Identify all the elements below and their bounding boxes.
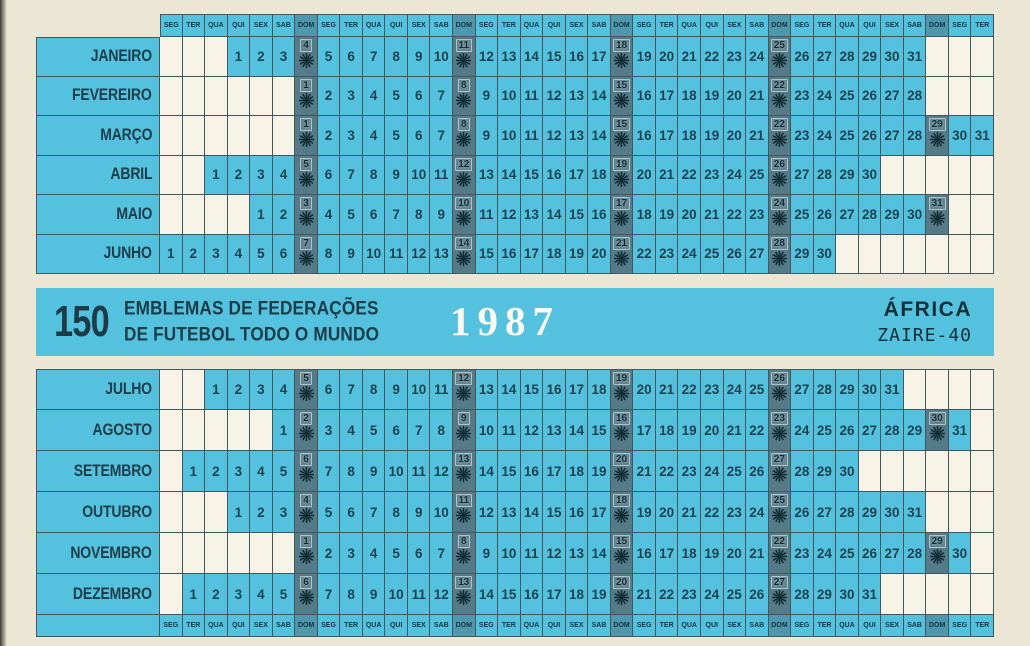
sunday-cell: 1 bbox=[295, 533, 318, 574]
day-cell: 5 bbox=[340, 195, 363, 235]
day-cell: 31 bbox=[881, 369, 904, 410]
day-cell: 14 bbox=[521, 492, 544, 533]
day-cell: 13 bbox=[566, 77, 589, 117]
day-cell: 24 bbox=[678, 235, 701, 275]
day-cell: 30 bbox=[836, 451, 859, 492]
sun-icon bbox=[772, 53, 787, 68]
sunday-number: 11 bbox=[456, 494, 473, 507]
sunday-number: 4 bbox=[300, 39, 312, 52]
day-cell: 13 bbox=[521, 195, 544, 235]
weekday-header-cell: SEX bbox=[881, 615, 904, 637]
weekday-header-cell: SEX bbox=[408, 14, 431, 37]
day-cell: 29 bbox=[881, 195, 904, 235]
day-cell: 5 bbox=[363, 410, 386, 451]
day-cell: 30 bbox=[814, 235, 837, 275]
day-cell: 2 bbox=[183, 235, 206, 275]
day-cell: 22 bbox=[656, 574, 679, 615]
blank-cell bbox=[926, 235, 949, 275]
day-cell: 28 bbox=[836, 492, 859, 533]
weekday-header-cell: TER bbox=[183, 615, 206, 637]
sunday-number: 23 bbox=[771, 412, 788, 425]
day-cell: 19 bbox=[566, 235, 589, 275]
day-cell: 17 bbox=[588, 492, 611, 533]
blank-cell bbox=[273, 77, 296, 117]
day-cell: 13 bbox=[566, 533, 589, 574]
sun-icon bbox=[614, 172, 629, 187]
blank-cell bbox=[949, 156, 972, 196]
day-cell: 21 bbox=[656, 369, 679, 410]
day-cell: 29 bbox=[836, 369, 859, 410]
day-cell: 24 bbox=[791, 410, 814, 451]
sun-icon bbox=[614, 467, 629, 482]
day-cell: 10 bbox=[430, 492, 453, 533]
blank-cell bbox=[205, 410, 228, 451]
month-label: SETEMBRO bbox=[36, 451, 160, 492]
day-cell: 20 bbox=[724, 77, 747, 117]
day-cell: 28 bbox=[904, 116, 927, 156]
sunday-number: 24 bbox=[771, 197, 788, 210]
sunday-cell: 3 bbox=[295, 195, 318, 235]
sunday-cell: 29 bbox=[926, 533, 949, 574]
day-cell: 10 bbox=[498, 116, 521, 156]
day-cell: 11 bbox=[521, 533, 544, 574]
weekday-header-cell: TER bbox=[183, 14, 206, 37]
weekday-header-cell: SEG bbox=[476, 615, 499, 637]
blank-cell bbox=[881, 235, 904, 275]
sunday-cell: 25 bbox=[769, 37, 792, 77]
sun-icon bbox=[299, 386, 314, 401]
banner-title: EMBLEMAS DE FEDERAÇÕES DE FUTEBOL TODO O… bbox=[124, 296, 379, 347]
weekday-header-cell: QUA bbox=[205, 615, 228, 637]
weekday-header-cell: SAB bbox=[746, 615, 769, 637]
day-cell: 3 bbox=[205, 235, 228, 275]
day-cell: 8 bbox=[385, 37, 408, 77]
weekday-header-cell: SEG bbox=[476, 14, 499, 37]
sunday-cell: 22 bbox=[769, 533, 792, 574]
day-cell: 30 bbox=[949, 116, 972, 156]
day-cell: 21 bbox=[678, 37, 701, 77]
day-cell: 9 bbox=[363, 451, 386, 492]
weekday-header-cell: QUI bbox=[859, 615, 882, 637]
day-cell: 18 bbox=[678, 77, 701, 117]
weekday-header-cell: QUA bbox=[678, 14, 701, 37]
day-cell: 10 bbox=[430, 37, 453, 77]
day-cell: 16 bbox=[521, 451, 544, 492]
day-cell: 25 bbox=[836, 116, 859, 156]
day-cell: 24 bbox=[746, 492, 769, 533]
day-cell: 2 bbox=[250, 492, 273, 533]
sunday-number: 12 bbox=[455, 372, 472, 385]
blank-cell bbox=[926, 574, 949, 615]
day-cell: 15 bbox=[521, 369, 544, 410]
blank-cell bbox=[205, 77, 228, 117]
sunday-cell: 13 bbox=[453, 574, 476, 615]
blank-cell bbox=[971, 195, 994, 235]
day-cell: 16 bbox=[633, 116, 656, 156]
sun-icon bbox=[772, 508, 787, 523]
weekday-header-cell: SAB bbox=[746, 14, 769, 37]
day-cell: 29 bbox=[791, 235, 814, 275]
sun-icon bbox=[456, 172, 471, 187]
sunday-cell: 23 bbox=[769, 410, 792, 451]
blank-cell bbox=[160, 156, 183, 196]
sunday-number: 1 bbox=[300, 118, 312, 131]
day-cell: 2 bbox=[250, 37, 273, 77]
day-cell: 8 bbox=[340, 574, 363, 615]
blank-cell bbox=[949, 574, 972, 615]
day-cell: 18 bbox=[588, 156, 611, 196]
weekday-header-cell: DOM bbox=[926, 615, 949, 637]
sunday-cell: 9 bbox=[453, 410, 476, 451]
day-cell: 2 bbox=[318, 116, 341, 156]
day-cell: 10 bbox=[476, 410, 499, 451]
sunday-cell: 11 bbox=[453, 37, 476, 77]
day-cell: 19 bbox=[701, 77, 724, 117]
day-cell: 6 bbox=[408, 116, 431, 156]
sun-icon bbox=[614, 53, 629, 68]
day-cell: 9 bbox=[430, 195, 453, 235]
weekday-header-cell: SEX bbox=[566, 14, 589, 37]
sun-icon bbox=[614, 549, 629, 564]
sunday-cell: 8 bbox=[453, 116, 476, 156]
day-cell: 17 bbox=[521, 235, 544, 275]
sun-icon bbox=[456, 211, 471, 226]
day-cell: 23 bbox=[791, 116, 814, 156]
blank-cell bbox=[183, 37, 206, 77]
day-cell: 10 bbox=[498, 533, 521, 574]
sunday-number: 15 bbox=[613, 535, 630, 548]
weekday-header-cell: QUI bbox=[543, 14, 566, 37]
day-cell: 17 bbox=[543, 574, 566, 615]
day-cell: 14 bbox=[521, 37, 544, 77]
day-cell: 19 bbox=[588, 574, 611, 615]
day-cell: 8 bbox=[408, 195, 431, 235]
weekday-header-cell: SEG bbox=[318, 615, 341, 637]
day-cell: 27 bbox=[859, 410, 882, 451]
sunday-cell: 5 bbox=[295, 156, 318, 196]
blank-cell bbox=[160, 37, 183, 77]
sunday-number: 20 bbox=[613, 576, 630, 589]
sunday-cell: 10 bbox=[453, 195, 476, 235]
sunday-cell: 15 bbox=[611, 116, 634, 156]
sun-icon bbox=[772, 132, 787, 147]
day-cell: 15 bbox=[543, 492, 566, 533]
day-cell: 6 bbox=[340, 492, 363, 533]
day-cell: 21 bbox=[633, 451, 656, 492]
day-cell: 18 bbox=[543, 235, 566, 275]
day-cell: 9 bbox=[476, 533, 499, 574]
sunday-number: 30 bbox=[929, 412, 946, 425]
sun-icon bbox=[930, 426, 945, 441]
blank-cell bbox=[836, 235, 859, 275]
day-cell: 7 bbox=[340, 369, 363, 410]
day-cell: 20 bbox=[588, 235, 611, 275]
sunday-number: 8 bbox=[458, 535, 470, 548]
sun-icon bbox=[930, 211, 945, 226]
day-cell: 4 bbox=[363, 116, 386, 156]
day-cell: 11 bbox=[430, 156, 453, 196]
day-cell: 4 bbox=[340, 410, 363, 451]
day-cell: 9 bbox=[340, 235, 363, 275]
weekday-header-cell: TER bbox=[498, 615, 521, 637]
sun-icon bbox=[772, 211, 787, 226]
day-cell: 10 bbox=[363, 235, 386, 275]
day-cell: 27 bbox=[881, 77, 904, 117]
day-cell: 21 bbox=[633, 574, 656, 615]
day-cell: 18 bbox=[656, 410, 679, 451]
weekday-header-cell: QUI bbox=[228, 14, 251, 37]
day-cell: 2 bbox=[318, 533, 341, 574]
day-cell: 30 bbox=[859, 156, 882, 196]
day-cell: 6 bbox=[385, 410, 408, 451]
weekday-header-cell: QUA bbox=[205, 14, 228, 37]
sunday-cell: 6 bbox=[295, 451, 318, 492]
sunday-number: 22 bbox=[771, 535, 788, 548]
weekday-header-cell: QUI bbox=[385, 14, 408, 37]
day-cell: 16 bbox=[521, 574, 544, 615]
day-cell: 3 bbox=[340, 116, 363, 156]
sunday-cell: 24 bbox=[769, 195, 792, 235]
sunday-cell: 20 bbox=[611, 451, 634, 492]
day-cell: 28 bbox=[791, 574, 814, 615]
day-cell: 17 bbox=[656, 533, 679, 574]
day-cell: 5 bbox=[318, 492, 341, 533]
day-cell: 18 bbox=[678, 116, 701, 156]
weekday-header-cell: DOM bbox=[295, 615, 318, 637]
day-cell: 4 bbox=[250, 574, 273, 615]
sunday-number: 27 bbox=[771, 453, 788, 466]
day-cell: 26 bbox=[791, 37, 814, 77]
day-cell: 29 bbox=[859, 37, 882, 77]
sunday-number: 20 bbox=[613, 453, 630, 466]
day-cell: 3 bbox=[228, 451, 251, 492]
day-cell: 12 bbox=[430, 574, 453, 615]
sunday-cell: 26 bbox=[769, 369, 792, 410]
day-cell: 11 bbox=[408, 574, 431, 615]
day-cell: 14 bbox=[476, 451, 499, 492]
day-cell: 12 bbox=[430, 451, 453, 492]
weekday-header-cell: SAB bbox=[588, 14, 611, 37]
day-cell: 23 bbox=[656, 235, 679, 275]
day-cell: 7 bbox=[363, 492, 386, 533]
sunday-cell: 19 bbox=[611, 156, 634, 196]
day-cell: 12 bbox=[521, 410, 544, 451]
blank-cell bbox=[881, 574, 904, 615]
day-cell: 26 bbox=[791, 492, 814, 533]
sunday-cell: 17 bbox=[611, 195, 634, 235]
day-cell: 15 bbox=[521, 156, 544, 196]
sun-icon bbox=[772, 467, 787, 482]
weekday-header-cell: QUA bbox=[678, 615, 701, 637]
blank-cell bbox=[183, 533, 206, 574]
day-cell: 25 bbox=[724, 451, 747, 492]
weekday-header-cell: TER bbox=[814, 14, 837, 37]
weekday-header-cell: DOM bbox=[926, 14, 949, 37]
sunday-number: 22 bbox=[771, 118, 788, 131]
day-cell: 17 bbox=[543, 451, 566, 492]
day-cell: 31 bbox=[904, 37, 927, 77]
weekday-header-cell: SEX bbox=[408, 615, 431, 637]
day-cell: 6 bbox=[318, 156, 341, 196]
day-cell: 1 bbox=[250, 195, 273, 235]
blank-cell bbox=[160, 116, 183, 156]
weekday-header-cell: SEG bbox=[791, 615, 814, 637]
sunday-cell: 27 bbox=[769, 574, 792, 615]
day-cell: 15 bbox=[476, 235, 499, 275]
sun-icon bbox=[614, 251, 629, 266]
month-label: ABRIL bbox=[36, 156, 160, 196]
sunday-number: 13 bbox=[455, 576, 472, 589]
day-cell: 20 bbox=[678, 195, 701, 235]
weekday-header-cell: DOM bbox=[769, 615, 792, 637]
sunday-number: 10 bbox=[455, 197, 472, 210]
blank-cell bbox=[183, 410, 206, 451]
blank-cell bbox=[859, 451, 882, 492]
day-cell: 7 bbox=[430, 116, 453, 156]
blank-cell bbox=[949, 37, 972, 77]
day-cell: 15 bbox=[498, 574, 521, 615]
blank-cell bbox=[904, 369, 927, 410]
sunday-number: 14 bbox=[455, 237, 472, 250]
sunday-number: 28 bbox=[771, 237, 788, 250]
day-cell: 23 bbox=[746, 195, 769, 235]
day-cell: 12 bbox=[543, 116, 566, 156]
day-cell: 1 bbox=[160, 235, 183, 275]
sunday-number: 5 bbox=[300, 158, 312, 171]
day-cell: 9 bbox=[385, 369, 408, 410]
sun-icon bbox=[614, 93, 629, 108]
sunday-cell: 21 bbox=[611, 235, 634, 275]
weekday-header-cell: SEG bbox=[160, 615, 183, 637]
photo-edge bbox=[0, 0, 7, 646]
day-cell: 28 bbox=[814, 369, 837, 410]
day-cell: 25 bbox=[746, 156, 769, 196]
weekday-header-cell: QUA bbox=[521, 14, 544, 37]
sunday-number: 5 bbox=[300, 372, 312, 385]
day-cell: 15 bbox=[566, 195, 589, 235]
day-cell: 14 bbox=[498, 156, 521, 196]
weekday-header-cell: SEX bbox=[566, 615, 589, 637]
day-cell: 28 bbox=[904, 77, 927, 117]
day-cell: 29 bbox=[836, 156, 859, 196]
sunday-number: 29 bbox=[929, 118, 946, 131]
day-cell: 10 bbox=[385, 574, 408, 615]
day-cell: 21 bbox=[678, 492, 701, 533]
day-cell: 10 bbox=[498, 77, 521, 117]
day-cell: 25 bbox=[836, 533, 859, 574]
sun-icon bbox=[299, 53, 314, 68]
weekday-header-cell: QUA bbox=[836, 14, 859, 37]
day-cell: 14 bbox=[543, 195, 566, 235]
day-cell: 6 bbox=[363, 195, 386, 235]
day-cell: 22 bbox=[701, 492, 724, 533]
sun-icon bbox=[299, 549, 314, 564]
day-cell: 6 bbox=[340, 37, 363, 77]
day-cell: 11 bbox=[476, 195, 499, 235]
weekday-header-cell: QUA bbox=[363, 14, 386, 37]
weekday-header-cell: SEX bbox=[250, 615, 273, 637]
weekday-header-cell: TER bbox=[656, 615, 679, 637]
sunday-number: 27 bbox=[771, 576, 788, 589]
sunday-cell: 20 bbox=[611, 574, 634, 615]
sunday-number: 12 bbox=[455, 158, 472, 171]
day-cell: 30 bbox=[881, 37, 904, 77]
calendar-card: SEGTERQUAQUISEXSABDOMSEGTERQUAQUISEXSABD… bbox=[0, 0, 1030, 646]
day-cell: 10 bbox=[408, 369, 431, 410]
blank-cell bbox=[971, 235, 994, 275]
day-cell: 23 bbox=[701, 156, 724, 196]
weekday-header-cell: SAB bbox=[273, 615, 296, 637]
sunday-cell: 13 bbox=[453, 451, 476, 492]
day-cell: 12 bbox=[543, 77, 566, 117]
day-cell: 25 bbox=[724, 574, 747, 615]
blank-cell bbox=[250, 77, 273, 117]
day-cell: 4 bbox=[273, 369, 296, 410]
weekday-header-cell: TER bbox=[340, 14, 363, 37]
sunday-cell: 1 bbox=[295, 77, 318, 117]
day-cell: 24 bbox=[814, 77, 837, 117]
sun-icon bbox=[299, 93, 314, 108]
sunday-number: 4 bbox=[300, 494, 312, 507]
day-cell: 11 bbox=[521, 77, 544, 117]
day-cell: 27 bbox=[881, 533, 904, 574]
day-cell: 6 bbox=[273, 235, 296, 275]
weekday-header-cell: QUI bbox=[859, 14, 882, 37]
day-cell: 22 bbox=[724, 195, 747, 235]
day-cell: 7 bbox=[408, 410, 431, 451]
day-cell: 1 bbox=[273, 410, 296, 451]
day-cell: 6 bbox=[408, 77, 431, 117]
weekday-header-cell: TER bbox=[340, 615, 363, 637]
day-cell: 5 bbox=[385, 116, 408, 156]
day-cell: 19 bbox=[633, 37, 656, 77]
day-cell: 4 bbox=[318, 195, 341, 235]
day-cell: 16 bbox=[498, 235, 521, 275]
blank-cell bbox=[205, 195, 228, 235]
sunday-cell: 18 bbox=[611, 492, 634, 533]
blank-cell bbox=[183, 195, 206, 235]
sun-icon bbox=[930, 132, 945, 147]
blank-cell bbox=[205, 492, 228, 533]
day-cell: 4 bbox=[363, 77, 386, 117]
day-cell: 1 bbox=[205, 156, 228, 196]
day-cell: 19 bbox=[656, 195, 679, 235]
day-cell: 28 bbox=[814, 156, 837, 196]
day-cell: 7 bbox=[363, 37, 386, 77]
day-cell: 3 bbox=[273, 37, 296, 77]
sunday-number: 18 bbox=[613, 39, 630, 52]
day-cell: 20 bbox=[633, 156, 656, 196]
blank-cell bbox=[160, 369, 183, 410]
day-cell: 3 bbox=[340, 77, 363, 117]
sun-icon bbox=[772, 426, 787, 441]
day-cell: 26 bbox=[746, 574, 769, 615]
sunday-number: 15 bbox=[613, 118, 630, 131]
day-cell: 2 bbox=[205, 574, 228, 615]
month-label: JUNHO bbox=[36, 235, 160, 275]
day-cell: 11 bbox=[408, 451, 431, 492]
header-spacer bbox=[36, 14, 160, 37]
weekday-header-cell: TER bbox=[814, 615, 837, 637]
day-cell: 12 bbox=[476, 37, 499, 77]
day-cell: 5 bbox=[273, 574, 296, 615]
weekday-header-cell: SEG bbox=[633, 14, 656, 37]
day-cell: 20 bbox=[633, 369, 656, 410]
day-cell: 24 bbox=[814, 533, 837, 574]
day-cell: 29 bbox=[904, 410, 927, 451]
month-label: DEZEMBRO bbox=[36, 574, 160, 615]
blank-cell bbox=[949, 369, 972, 410]
